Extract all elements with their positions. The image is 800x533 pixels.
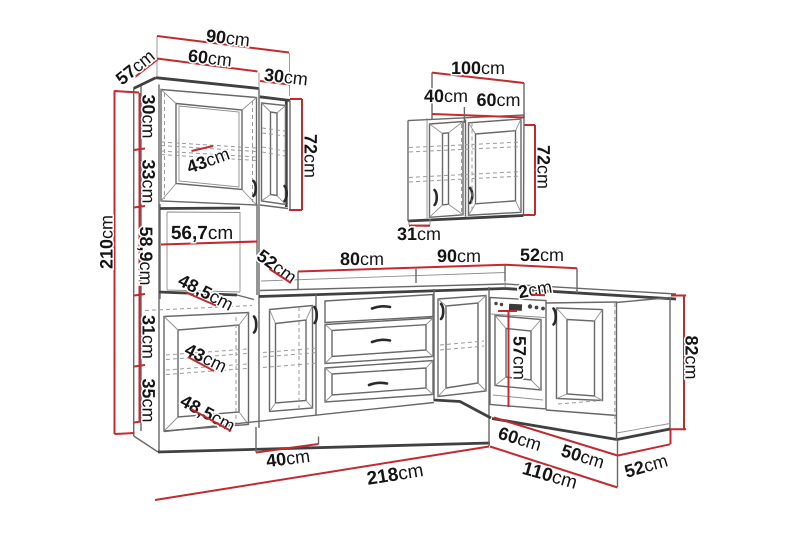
- svg-text:72cm: 72cm: [301, 134, 321, 178]
- svg-text:56,7cm: 56,7cm: [171, 223, 233, 244]
- svg-text:80cm: 80cm: [340, 249, 384, 269]
- svg-text:31cm: 31cm: [139, 315, 159, 359]
- svg-text:72cm: 72cm: [534, 145, 554, 189]
- svg-text:57cm: 57cm: [510, 336, 530, 380]
- svg-text:100cm: 100cm: [451, 58, 505, 78]
- svg-text:90cm: 90cm: [437, 246, 481, 266]
- svg-text:210cm: 210cm: [97, 215, 117, 269]
- svg-text:35cm: 35cm: [139, 378, 159, 422]
- svg-text:58,9cm: 58,9cm: [136, 226, 156, 285]
- svg-text:52cm: 52cm: [520, 245, 564, 265]
- svg-text:30cm: 30cm: [139, 94, 159, 138]
- svg-text:31cm: 31cm: [397, 224, 441, 244]
- svg-text:60cm: 60cm: [476, 90, 520, 110]
- svg-text:82cm: 82cm: [682, 335, 702, 379]
- svg-text:40cm: 40cm: [424, 86, 468, 106]
- svg-text:33cm: 33cm: [139, 159, 159, 203]
